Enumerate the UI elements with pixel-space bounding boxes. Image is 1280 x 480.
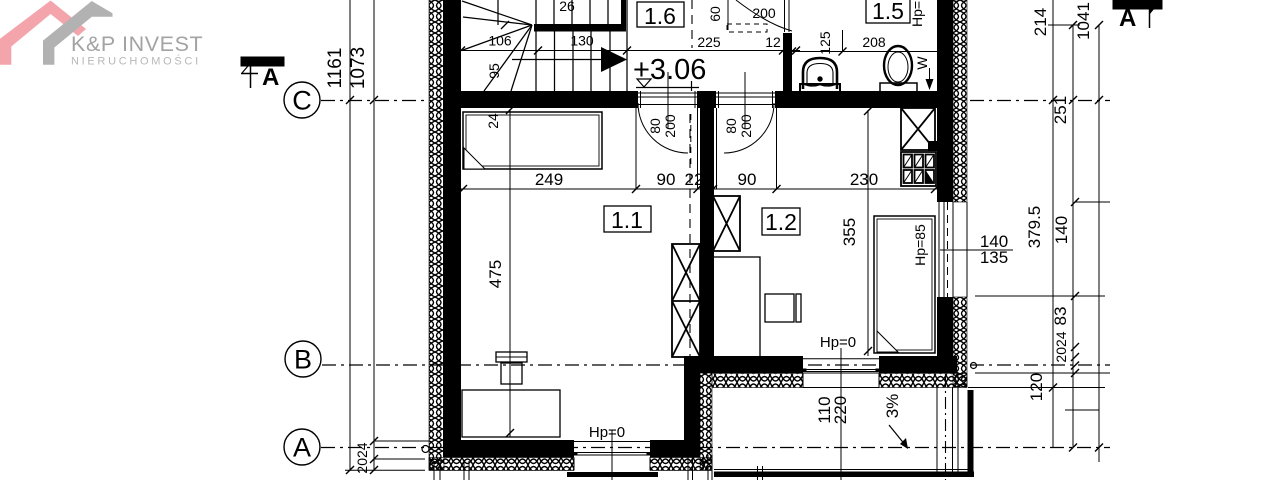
- svg-text:3%: 3%: [883, 394, 902, 419]
- svg-text:200: 200: [752, 5, 776, 21]
- svg-text:Hp=85: Hp=85: [912, 224, 928, 266]
- svg-text:230: 230: [850, 170, 878, 189]
- svg-text:B: B: [294, 345, 312, 375]
- svg-text:125: 125: [817, 31, 833, 55]
- svg-text:379.5: 379.5: [1025, 206, 1044, 249]
- svg-text:130: 130: [570, 33, 594, 49]
- svg-text:A: A: [262, 64, 279, 91]
- svg-text:120: 120: [1027, 373, 1046, 401]
- svg-text:355: 355: [840, 218, 859, 246]
- svg-text:249: 249: [535, 170, 563, 189]
- svg-text:2024: 2024: [354, 442, 370, 473]
- svg-text:1.5: 1.5: [872, 0, 904, 24]
- svg-text:135: 135: [980, 248, 1008, 267]
- svg-text:200: 200: [662, 114, 678, 138]
- svg-text:NIERUCHOMOŚCI: NIERUCHOMOŚCI: [71, 55, 201, 68]
- svg-text:80: 80: [723, 118, 739, 134]
- svg-text:2024: 2024: [1053, 331, 1069, 362]
- svg-text:90: 90: [738, 170, 757, 189]
- svg-text:A: A: [293, 433, 311, 463]
- svg-text:1.6: 1.6: [644, 3, 676, 29]
- svg-text:Hp=0: Hp=0: [589, 424, 625, 441]
- svg-text:12: 12: [765, 34, 781, 50]
- svg-text:K&P INVEST: K&P INVEST: [71, 32, 203, 56]
- svg-text:W: W: [914, 56, 930, 70]
- svg-text:200: 200: [738, 114, 754, 138]
- svg-text:Hp=: Hp=: [909, 1, 925, 27]
- svg-text:106: 106: [488, 33, 512, 49]
- svg-text:C: C: [292, 86, 312, 116]
- svg-text:26: 26: [559, 0, 575, 14]
- svg-text:90: 90: [657, 170, 676, 189]
- svg-text:22: 22: [685, 170, 704, 189]
- svg-text:1161: 1161: [325, 48, 346, 89]
- svg-text:1.1: 1.1: [611, 207, 643, 233]
- svg-text:60: 60: [707, 6, 723, 22]
- svg-text:+3.06: +3.06: [633, 54, 706, 86]
- svg-text:95: 95: [486, 63, 502, 79]
- svg-text:225: 225: [697, 34, 721, 50]
- svg-text:1041: 1041: [1074, 2, 1093, 40]
- svg-text:475: 475: [486, 260, 505, 288]
- svg-text:24: 24: [485, 113, 501, 129]
- svg-text:83: 83: [1051, 307, 1070, 326]
- svg-text:214: 214: [1031, 8, 1050, 36]
- svg-text:251: 251: [1051, 96, 1070, 124]
- svg-text:80: 80: [647, 118, 663, 134]
- svg-text:A: A: [1119, 5, 1136, 32]
- svg-text:208: 208: [862, 34, 886, 50]
- svg-text:220: 220: [831, 396, 850, 424]
- svg-text:1.2: 1.2: [765, 209, 797, 235]
- svg-text:1073: 1073: [348, 47, 369, 89]
- svg-text:140: 140: [1052, 216, 1071, 244]
- svg-text:Hp=0: Hp=0: [820, 334, 856, 351]
